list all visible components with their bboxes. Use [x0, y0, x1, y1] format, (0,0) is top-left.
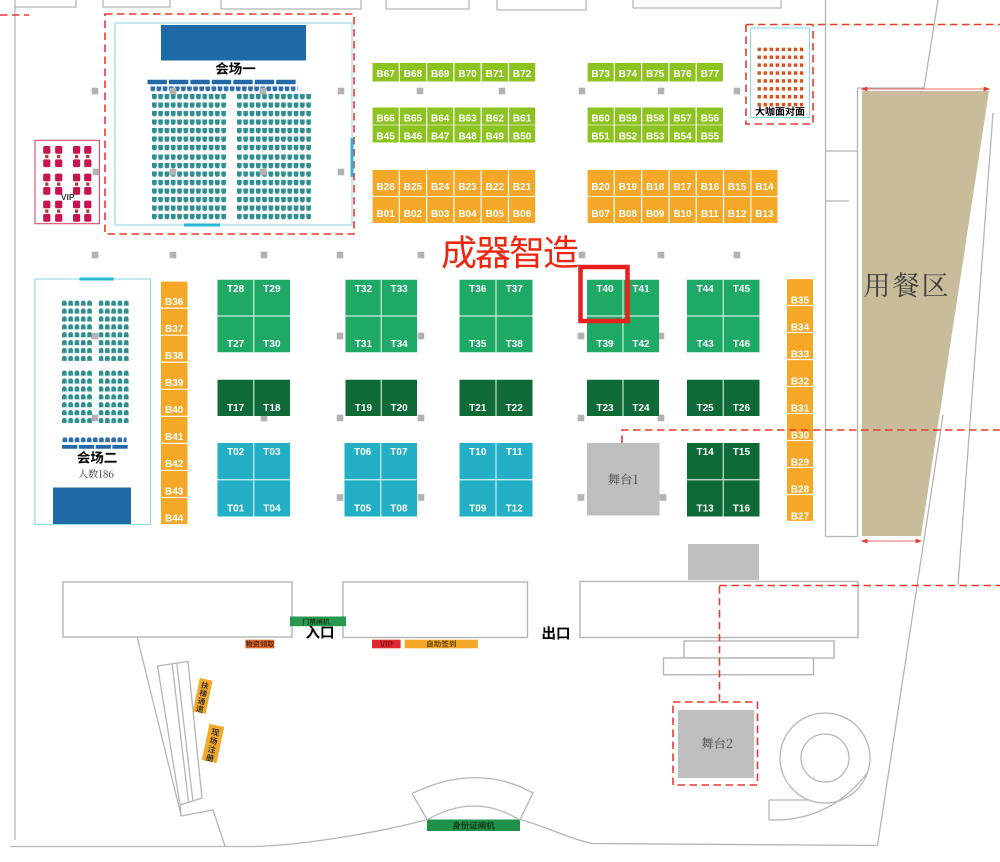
svg-text:B46: B46	[404, 132, 423, 143]
svg-text:B19: B19	[619, 182, 638, 193]
svg-text:T01: T01	[227, 504, 245, 515]
svg-text:T07: T07	[390, 447, 408, 458]
svg-text:B09: B09	[646, 209, 665, 220]
svg-text:B72: B72	[513, 69, 532, 80]
svg-text:B15: B15	[728, 182, 747, 193]
svg-text:B45: B45	[376, 132, 395, 143]
svg-text:B10: B10	[673, 209, 692, 220]
svg-text:B36: B36	[165, 297, 184, 308]
svg-text:B20: B20	[591, 182, 610, 193]
svg-text:T14: T14	[696, 447, 714, 458]
svg-text:B21: B21	[513, 182, 532, 193]
svg-text:B23: B23	[458, 182, 477, 193]
svg-text:B50: B50	[513, 132, 532, 143]
svg-text:B05: B05	[486, 209, 505, 220]
svg-text:T30: T30	[263, 339, 281, 350]
svg-text:B65: B65	[404, 114, 423, 125]
svg-text:B48: B48	[458, 132, 477, 143]
svg-text:T03: T03	[263, 447, 281, 458]
svg-text:B75: B75	[646, 69, 665, 80]
svg-text:T02: T02	[227, 447, 245, 458]
svg-text:T29: T29	[263, 284, 281, 295]
svg-text:B06: B06	[513, 209, 532, 220]
svg-text:B60: B60	[591, 114, 610, 125]
svg-text:B43: B43	[165, 486, 184, 497]
svg-text:B27: B27	[791, 511, 810, 522]
svg-text:T08: T08	[390, 504, 408, 515]
svg-text:B17: B17	[673, 182, 692, 193]
svg-text:B68: B68	[404, 69, 423, 80]
svg-text:B41: B41	[165, 432, 184, 443]
svg-text:B16: B16	[701, 182, 720, 193]
svg-text:T11: T11	[506, 447, 523, 458]
svg-text:B39: B39	[165, 378, 184, 389]
svg-text:T45: T45	[733, 284, 751, 295]
svg-text:T13: T13	[696, 504, 714, 515]
svg-text:B49: B49	[486, 132, 505, 143]
svg-text:B58: B58	[646, 114, 665, 125]
svg-text:T19: T19	[355, 403, 373, 414]
svg-text:T04: T04	[263, 504, 281, 515]
svg-text:T10: T10	[469, 447, 487, 458]
svg-text:T20: T20	[390, 403, 408, 414]
svg-text:B08: B08	[619, 209, 638, 220]
svg-text:B14: B14	[755, 182, 774, 193]
svg-text:T21: T21	[469, 403, 487, 414]
svg-text:B18: B18	[646, 182, 665, 193]
svg-text:B56: B56	[701, 114, 720, 125]
svg-text:B24: B24	[431, 182, 450, 193]
svg-text:B28: B28	[791, 484, 810, 495]
svg-text:B77: B77	[701, 69, 720, 80]
svg-text:B52: B52	[619, 132, 638, 143]
svg-text:T43: T43	[696, 339, 714, 350]
svg-text:B29: B29	[791, 457, 810, 468]
svg-text:T12: T12	[506, 504, 524, 515]
svg-text:B63: B63	[458, 114, 477, 125]
svg-text:T27: T27	[227, 339, 245, 350]
svg-text:B35: B35	[791, 295, 810, 306]
svg-text:T15: T15	[733, 447, 751, 458]
svg-text:T44: T44	[696, 284, 714, 295]
svg-text:B07: B07	[591, 209, 610, 220]
svg-text:B33: B33	[791, 349, 810, 360]
svg-text:B11: B11	[701, 209, 719, 220]
svg-text:B76: B76	[673, 69, 692, 80]
svg-text:B03: B03	[431, 209, 450, 220]
svg-text:B25: B25	[404, 182, 423, 193]
svg-text:B22: B22	[486, 182, 505, 193]
svg-text:B55: B55	[701, 132, 720, 143]
svg-text:T32: T32	[355, 284, 373, 295]
svg-text:B53: B53	[646, 132, 665, 143]
svg-text:B26: B26	[376, 182, 395, 193]
svg-text:T41: T41	[632, 284, 650, 295]
svg-text:B57: B57	[673, 114, 692, 125]
svg-text:B69: B69	[431, 69, 450, 80]
svg-text:T36: T36	[469, 284, 487, 295]
svg-text:T33: T33	[390, 284, 408, 295]
svg-text:T42: T42	[632, 339, 650, 350]
svg-text:T26: T26	[733, 403, 751, 414]
svg-text:T23: T23	[596, 403, 614, 414]
svg-text:B37: B37	[165, 324, 184, 335]
svg-text:B66: B66	[376, 114, 395, 125]
svg-text:B47: B47	[431, 132, 450, 143]
svg-text:VIP: VIP	[380, 640, 394, 649]
svg-text:B70: B70	[458, 69, 477, 80]
svg-text:B51: B51	[591, 132, 610, 143]
svg-text:B30: B30	[791, 430, 810, 441]
svg-text:B59: B59	[619, 114, 638, 125]
svg-text:T16: T16	[733, 504, 751, 515]
svg-text:T31: T31	[355, 339, 373, 350]
svg-text:B34: B34	[791, 322, 810, 333]
svg-text:T24: T24	[632, 403, 650, 414]
svg-text:B12: B12	[728, 209, 747, 220]
svg-text:B44: B44	[165, 513, 184, 524]
svg-text:B31: B31	[791, 403, 810, 414]
svg-text:B67: B67	[376, 69, 395, 80]
svg-text:B73: B73	[591, 69, 610, 80]
svg-text:T39: T39	[596, 339, 614, 350]
svg-text:B64: B64	[431, 114, 450, 125]
svg-text:T22: T22	[506, 403, 524, 414]
svg-text:T35: T35	[469, 339, 487, 350]
svg-text:T05: T05	[354, 504, 372, 515]
svg-text:T46: T46	[733, 339, 751, 350]
svg-text:T06: T06	[354, 447, 372, 458]
svg-text:B54: B54	[673, 132, 692, 143]
svg-text:VIP: VIP	[61, 192, 75, 202]
svg-text:T28: T28	[227, 284, 245, 295]
svg-text:B02: B02	[404, 209, 423, 220]
svg-text:B13: B13	[755, 209, 774, 220]
svg-text:B61: B61	[513, 114, 532, 125]
svg-text:T40: T40	[596, 284, 614, 295]
svg-text:B40: B40	[165, 405, 184, 416]
svg-text:T09: T09	[469, 504, 487, 515]
svg-text:T17: T17	[227, 403, 245, 414]
svg-text:B42: B42	[165, 459, 184, 470]
svg-text:B38: B38	[165, 351, 184, 362]
svg-text:B62: B62	[486, 114, 505, 125]
svg-text:T38: T38	[506, 339, 524, 350]
svg-text:B04: B04	[458, 209, 477, 220]
svg-text:T34: T34	[390, 339, 408, 350]
svg-text:B01: B01	[376, 209, 395, 220]
svg-text:B71: B71	[486, 69, 505, 80]
svg-text:T37: T37	[506, 284, 524, 295]
svg-text:B74: B74	[619, 69, 638, 80]
svg-text:B32: B32	[791, 376, 810, 387]
svg-text:T18: T18	[263, 403, 281, 414]
svg-text:T25: T25	[696, 403, 714, 414]
